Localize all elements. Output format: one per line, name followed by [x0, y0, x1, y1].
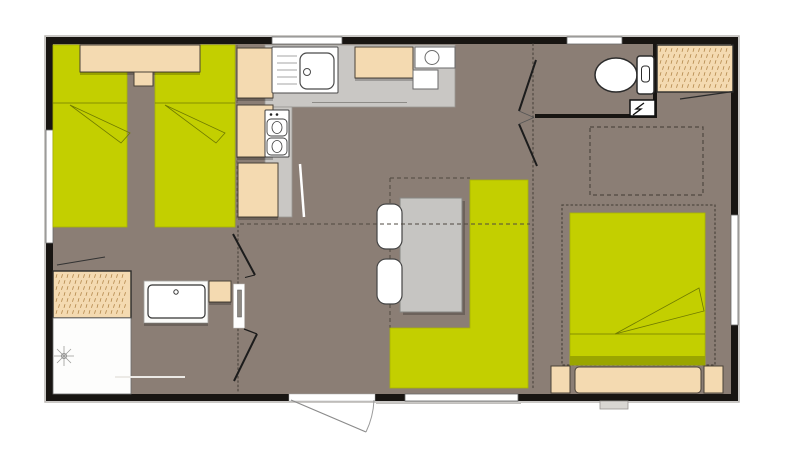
sink-bowl: [300, 53, 334, 89]
stove-knob-left: [270, 113, 273, 116]
kitchen-base-cabinet: [238, 163, 278, 217]
twin-headboard-shelf: [80, 45, 200, 72]
entry-door-leaf: [291, 400, 366, 432]
kitchen-base-cabinet-shadow: [238, 217, 278, 220]
entry-door-opening: [289, 394, 375, 401]
bathroom-door-panel: [238, 290, 242, 317]
wardrobe-right: [657, 45, 733, 92]
double-bed-foot-shadow: [570, 356, 705, 365]
dining-table: [400, 198, 462, 312]
chair-upper: [377, 204, 402, 249]
entry-step: [600, 401, 628, 409]
basin-counter-shadow: [144, 323, 208, 326]
bathroom-cabinet-shadow: [209, 302, 231, 305]
bathroom-wardrobe: [53, 271, 131, 318]
fridge-cabinet-shadow: [355, 78, 413, 81]
tall-unit-upper: [237, 48, 273, 98]
water-heater-lower: [413, 70, 438, 89]
floor-plan-page: Mobile home floor plan: [0, 0, 800, 452]
toilet-bowl: [595, 58, 637, 92]
tall-unit-upper-shadow: [237, 98, 273, 101]
twin-nightstand: [134, 72, 153, 86]
double-headboard: [575, 367, 701, 393]
window-top-kitchen: [272, 37, 342, 44]
window-left-bedroom: [46, 130, 53, 243]
floor-plan: Mobile home floor plan: [0, 0, 800, 452]
double-nightstand-right: [704, 366, 723, 393]
window-top-wc: [567, 37, 622, 44]
window-bottom-living: [405, 394, 518, 401]
chair-lower: [377, 259, 402, 304]
water-heater: [415, 47, 455, 68]
double-bed: [570, 213, 705, 365]
entry-door-swing-arc: [366, 400, 374, 432]
fridge-cabinet: [355, 47, 413, 78]
stove-knob-right: [276, 113, 279, 116]
window-right-bedroom: [731, 215, 738, 325]
electric-panel: [630, 100, 655, 116]
toilet-flush-button: [642, 66, 650, 82]
bathroom-cabinet: [209, 281, 231, 302]
double-nightstand-left: [551, 366, 570, 393]
